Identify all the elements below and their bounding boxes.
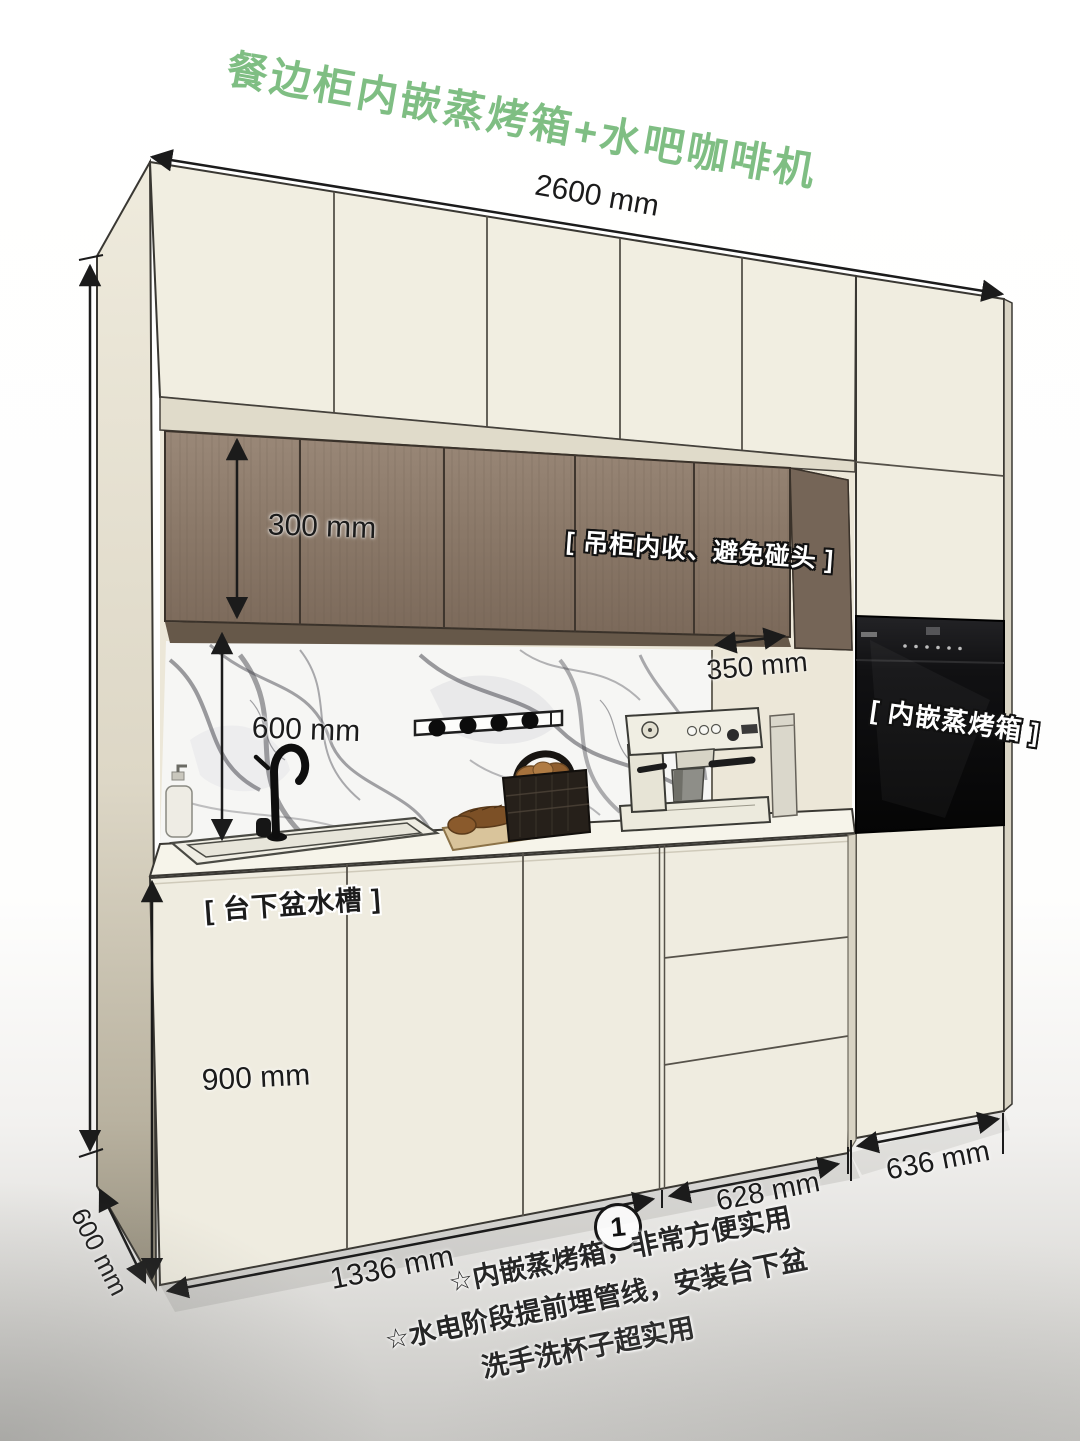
dimension-backsplash-height: 600 mm [251, 712, 360, 747]
dimension-upper-height: 300 mm [267, 509, 376, 544]
design-note-page: 餐边柜内嵌蒸烤箱+水吧咖啡机 2600 mm 300 mm [ 吊柜内收、避免碰… [0, 0, 1080, 1441]
dimension-base-height: 900 mm [201, 1059, 311, 1096]
cabinet-left-side-panel [97, 162, 156, 1288]
